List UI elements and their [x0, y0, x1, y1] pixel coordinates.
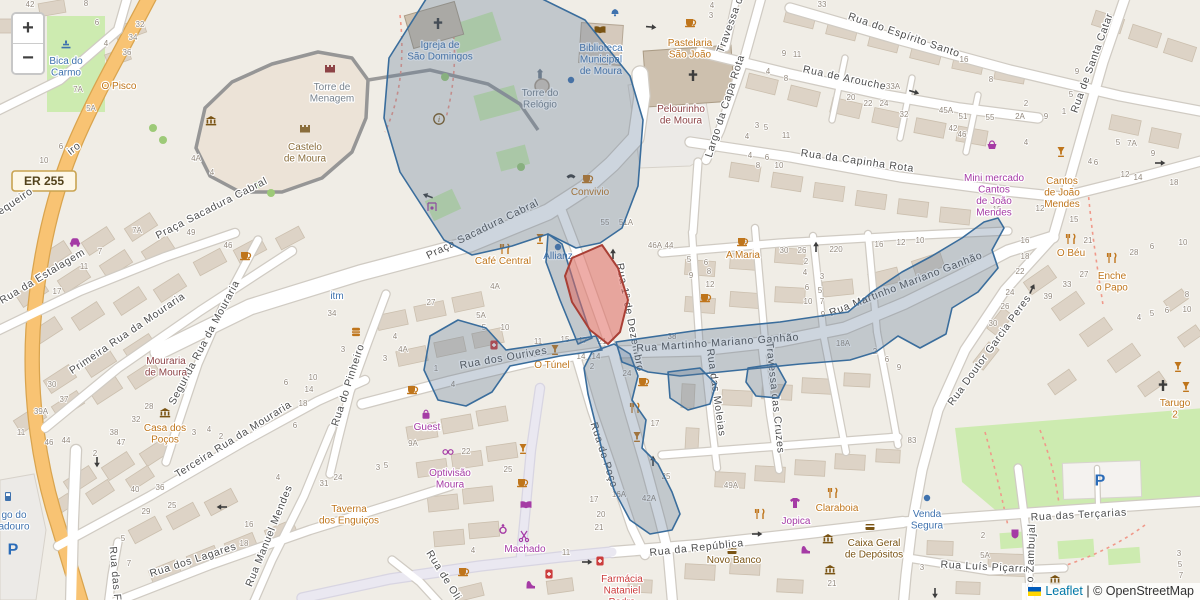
poi-label: Castelo	[288, 142, 322, 153]
house-number: 32	[136, 20, 145, 29]
house-number: 49A	[724, 481, 739, 490]
castle-icon	[300, 125, 310, 133]
house-number: 6	[1094, 158, 1099, 167]
house-number: 2	[981, 531, 986, 540]
house-number: 9A	[408, 439, 418, 448]
poi-label: A Maria	[726, 250, 760, 261]
house-number: 34	[328, 309, 337, 318]
zoom-in-button[interactable]: +	[13, 14, 43, 44]
house-number: 5	[1150, 309, 1155, 318]
poi-label: Jopica	[782, 516, 811, 527]
house-number: 3	[383, 354, 388, 363]
house-number: 33A	[886, 82, 901, 91]
house-number: 11	[782, 131, 791, 140]
leaflet-link[interactable]: Leaflet	[1045, 584, 1083, 598]
house-number: 4	[207, 425, 212, 434]
house-number: 3	[820, 272, 825, 281]
house-number: 47	[117, 438, 126, 447]
ukraine-flag-icon	[1028, 587, 1041, 596]
poi-label: Mini mercado	[964, 173, 1024, 184]
house-number: 34	[129, 33, 138, 42]
street-label: co Zambujal	[1024, 523, 1038, 588]
house-number: 28	[145, 402, 154, 411]
house-number: 10	[309, 373, 318, 382]
house-number: 38	[110, 428, 119, 437]
house-number: 6	[59, 142, 64, 151]
house-number: 22	[1016, 267, 1025, 276]
house-number: 39	[1044, 292, 1053, 301]
house-number: 20	[597, 510, 606, 519]
house-number: 4	[393, 332, 398, 341]
poi-label: Tarugo	[1160, 398, 1191, 409]
house-number: 8	[784, 74, 789, 83]
house-number: 3	[755, 121, 760, 130]
house-number: 51	[959, 112, 968, 121]
poi-label: itm	[330, 291, 343, 302]
map-container[interactable]: ER 255 iPP 428632344367A5A6104A4497A4671…	[0, 0, 1200, 600]
poi-label: O Túnel	[534, 360, 569, 371]
house-number: 24	[1006, 288, 1015, 297]
house-number: 4	[745, 132, 750, 141]
house-number: 17	[651, 419, 660, 428]
poi-label: O Béu	[1057, 248, 1085, 259]
house-number: 22	[864, 99, 873, 108]
house-number: 3	[709, 11, 714, 20]
house-number: 5	[1116, 138, 1121, 147]
poi-label: Optivisão	[429, 468, 471, 479]
poi-label: go do	[1, 510, 26, 521]
house-number: 30	[989, 319, 998, 328]
road-ref-label: ER 255	[24, 174, 64, 188]
house-number: 27	[427, 298, 436, 307]
house-number: 6	[284, 378, 289, 387]
zoom-control: + −	[11, 12, 45, 75]
house-number: 33	[1063, 280, 1072, 289]
house-number: 25	[504, 465, 513, 474]
house-number: 21	[1084, 236, 1093, 245]
house-number: 5A	[476, 311, 486, 320]
house-number: 6	[293, 421, 298, 430]
house-number: 4	[748, 151, 753, 160]
house-number: 7	[820, 297, 825, 306]
poi-label: Claraboia	[816, 503, 859, 514]
house-number: 3	[920, 563, 925, 572]
house-number: 6	[805, 283, 810, 292]
house-number: 46	[958, 130, 967, 139]
house-number: 3	[341, 345, 346, 354]
poi-label: Mendes	[1044, 199, 1080, 210]
attribution-bar: Leaflet | © OpenStreetMap	[1022, 583, 1200, 600]
dot-icon	[924, 495, 930, 501]
house-number: 32	[900, 110, 909, 119]
house-number: 46	[45, 438, 54, 447]
house-number: 18	[1021, 252, 1030, 261]
monument-icon	[1012, 530, 1019, 539]
house-number: 6	[1165, 306, 1170, 315]
house-number: 37	[60, 395, 69, 404]
house-number: 4	[1137, 313, 1142, 322]
house-number: 12	[706, 280, 715, 289]
house-number: 3	[376, 463, 381, 472]
house-number: 7A	[73, 85, 83, 94]
poi-label: Venda	[913, 509, 942, 520]
house-number: 40	[131, 485, 140, 494]
house-number: 10	[916, 236, 925, 245]
house-number: 11	[80, 262, 89, 271]
house-number: 44	[665, 241, 674, 250]
house-number: 5	[121, 534, 126, 543]
parking-icon: P	[8, 542, 19, 559]
house-number: 9	[897, 363, 902, 372]
house-number: 2	[1024, 99, 1029, 108]
house-number: 4	[471, 546, 476, 555]
poi-label: Menagem	[310, 94, 354, 105]
house-number: 18	[299, 399, 308, 408]
house-number: 9	[1151, 149, 1156, 158]
poi-label: Enche	[1098, 271, 1127, 282]
house-number: 6	[885, 355, 890, 364]
poi-label: Mouraria	[146, 356, 186, 367]
house-number: 30	[48, 380, 57, 389]
house-number: 5	[818, 286, 823, 295]
house-number: 7	[1179, 571, 1184, 580]
house-number: 5	[764, 123, 769, 132]
bus-icon	[5, 492, 11, 501]
house-number: 32	[132, 415, 141, 424]
house-number: 16	[875, 240, 884, 249]
poi-label: Bica do	[49, 56, 83, 67]
poi-label: de Moura	[145, 368, 188, 379]
house-number: 18	[1170, 178, 1179, 187]
castle-icon	[325, 65, 335, 73]
house-number: 4A	[490, 282, 500, 291]
house-number: 4	[276, 473, 281, 482]
house-number: 39A	[34, 407, 49, 416]
house-number: 46A	[648, 241, 663, 250]
house-number: 7A	[132, 226, 142, 235]
house-number: 26	[798, 246, 807, 255]
house-number: 14	[305, 385, 314, 394]
house-number: 55	[986, 113, 995, 122]
poi-label: de João	[1044, 188, 1080, 199]
poi-label: Novo Banco	[707, 555, 762, 566]
poi-label: Nataniel	[604, 586, 641, 597]
house-number: 30	[780, 246, 789, 255]
house-number: 4	[710, 1, 715, 10]
poi-label: Machado	[504, 544, 546, 555]
house-number: 27	[1080, 270, 1089, 279]
house-number: 4	[1088, 157, 1093, 166]
house-number: 10	[1179, 238, 1188, 247]
house-number: 10	[804, 297, 813, 306]
poi-label: adouro	[0, 522, 30, 533]
house-number: 36	[156, 483, 165, 492]
house-number: 3	[192, 428, 197, 437]
house-number: 220	[829, 245, 843, 254]
house-number: 2A	[1015, 112, 1025, 121]
pharmacy-icon	[545, 570, 552, 579]
house-number: 7A	[1127, 139, 1137, 148]
house-number: 18	[240, 539, 249, 548]
poi-label: de Moura	[284, 154, 327, 165]
svg-text:P: P	[1095, 473, 1106, 490]
house-number: 7	[127, 559, 132, 568]
house-number: 5	[687, 255, 692, 264]
poi-label: dos Enguiços	[319, 516, 379, 527]
house-number: 16	[1021, 236, 1030, 245]
house-number: 2	[93, 449, 98, 458]
poi-label: Taverna	[331, 504, 367, 515]
house-number: 22	[462, 447, 471, 456]
poi-label: Torre de	[314, 82, 351, 93]
poi-label: Moura	[436, 480, 465, 491]
house-number: 25	[168, 501, 177, 510]
house-number: 2	[804, 257, 809, 266]
house-number: 20	[847, 93, 856, 102]
house-number: 11	[17, 428, 26, 437]
house-number: 9	[1044, 112, 1049, 121]
house-number: 28	[1130, 248, 1139, 257]
house-number: 21	[828, 579, 837, 588]
house-number: 42	[26, 0, 35, 9]
poi-label: Pelourinho	[657, 104, 705, 115]
house-number: 6	[1150, 242, 1155, 251]
poi-label: São João	[669, 50, 712, 61]
poi-label: Café Central	[475, 256, 531, 267]
house-number: 11	[793, 50, 802, 59]
road-ref-badge: ER 255	[12, 171, 76, 191]
house-number: 4	[766, 67, 771, 76]
house-number: 16	[245, 520, 254, 529]
poi-label: Caixa Geral	[848, 538, 901, 549]
house-number: 4	[210, 168, 215, 177]
house-number: 26	[1001, 302, 1010, 311]
poi-label: o Papo	[1096, 283, 1128, 294]
poi-label: de João	[976, 196, 1012, 207]
house-number: 6	[765, 153, 770, 162]
house-number: 12	[897, 238, 906, 247]
house-number: 5	[384, 461, 389, 470]
house-number: 8	[989, 75, 994, 84]
fastfood-icon	[352, 328, 360, 336]
poi-label: Guest	[414, 422, 441, 433]
house-number: 8	[756, 161, 761, 170]
house-number: 11	[562, 548, 571, 557]
house-number: 6	[704, 258, 709, 267]
house-number: 83	[908, 436, 917, 445]
house-number: 6	[95, 18, 100, 27]
poi-label: de Depósitos	[845, 550, 903, 561]
zoom-out-button[interactable]: −	[13, 44, 43, 73]
poi-label: Pastelaria	[668, 38, 713, 49]
house-number: 14	[1134, 173, 1143, 182]
poi-label: de Moura	[660, 116, 703, 127]
house-number: 36	[123, 48, 132, 57]
poi-label: Cantos	[978, 185, 1010, 196]
poi-label: Mendes	[976, 208, 1012, 219]
house-number: 31	[320, 479, 329, 488]
house-number: 4A	[191, 154, 201, 163]
house-number: 8	[84, 0, 89, 8]
poi-label: Carmo	[51, 68, 81, 79]
house-number: 4A	[398, 345, 408, 354]
svg-text:P: P	[8, 542, 19, 559]
attribution-separator: |	[1086, 584, 1089, 598]
house-number: 17	[53, 287, 62, 296]
house-number: 5A	[86, 104, 96, 113]
card-icon	[866, 524, 875, 530]
house-number: 29	[142, 507, 151, 516]
house-number: 24	[334, 473, 343, 482]
house-number: 9	[782, 49, 787, 58]
parking-icon: P	[1095, 473, 1106, 490]
poi-label: Casa dos	[144, 423, 186, 434]
house-number: 3	[1177, 549, 1182, 558]
house-number: 12	[1121, 170, 1130, 179]
house-number: 9	[1075, 67, 1080, 76]
house-number: 10	[40, 156, 49, 165]
map-canvas[interactable]: ER 255 iPP 428632344367A5A6104A4497A4671…	[0, 0, 1200, 600]
house-number: 4	[803, 268, 808, 277]
poi-label: 2	[1172, 410, 1178, 421]
house-number: 33	[818, 0, 827, 9]
house-number: 4	[1024, 138, 1029, 147]
house-number: 44	[62, 436, 71, 445]
osm-credit: © OpenStreetMap	[1093, 584, 1194, 598]
house-number: 7	[98, 247, 103, 256]
house-number: 49	[187, 228, 196, 237]
house-number: 9	[689, 271, 694, 280]
house-number: 8	[1185, 290, 1190, 299]
house-number: 16	[960, 55, 969, 64]
house-number: 24	[880, 99, 889, 108]
poi-label: O Pisco	[101, 81, 136, 92]
house-number: 10	[775, 161, 784, 170]
house-number: 4	[104, 39, 109, 48]
house-number: 8	[707, 267, 712, 276]
house-number: 21	[595, 523, 604, 532]
house-number: 17	[590, 495, 599, 504]
poi-label: Segura	[911, 521, 944, 532]
house-number: 46	[224, 241, 233, 250]
pharmacy-icon	[596, 557, 603, 566]
house-number: 10	[1183, 305, 1192, 314]
house-number: 10	[501, 323, 510, 332]
house-number: 5A	[980, 551, 990, 560]
poi-label: Farmácia	[601, 574, 643, 585]
house-number: 45A	[939, 106, 954, 115]
poi-label: Poços	[151, 435, 179, 446]
house-number: 15	[1070, 215, 1079, 224]
house-number: 1	[1062, 107, 1067, 116]
poi-label: Cantos	[1046, 176, 1078, 187]
house-number: 5	[1178, 560, 1183, 569]
